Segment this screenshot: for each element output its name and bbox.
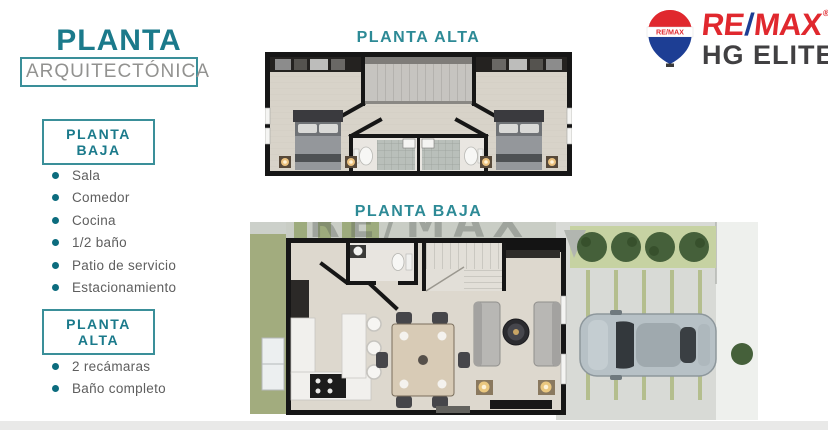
car [580, 310, 716, 380]
bullet-icon [52, 284, 59, 291]
slide: PLANTA ARQUITECTÓNICA PLANTA BAJA Sala C… [0, 0, 828, 430]
page-subtitle: ARQUITECTÓNICA [26, 61, 210, 82]
list-item: Cocina [52, 209, 176, 232]
hedge-row [564, 226, 716, 268]
page-title: PLANTA [18, 24, 220, 58]
list-item: Comedor [52, 187, 176, 210]
list-item: Estacionamiento [52, 277, 176, 300]
bullet-icon [52, 194, 59, 201]
stairs-ground [422, 243, 506, 291]
svg-text:RE/MAX: RE/MAX [656, 28, 684, 37]
plan-alta-title: PLANTA ALTA [265, 29, 572, 47]
floorplan-planta-baja: RE/MAX [250, 222, 758, 420]
floorplan-planta-alta [265, 52, 572, 176]
bullet-icon [52, 239, 59, 246]
closet-left [270, 57, 362, 72]
doormat [436, 406, 470, 413]
bullet-icon [52, 363, 59, 370]
page-subtitle-box: ARQUITECTÓNICA [20, 57, 198, 87]
bathroom-right [420, 138, 484, 171]
service-patio [262, 338, 284, 390]
list-item: Baño completo [52, 378, 166, 401]
bullet-icon [52, 172, 59, 179]
section-label-planta-baja: PLANTA BAJA [42, 119, 155, 165]
section-label-planta-alta: PLANTA ALTA [42, 309, 155, 355]
list-item: 2 recámaras [52, 355, 166, 378]
closet-right [475, 57, 567, 72]
plan-baja-title: PLANTA BAJA [265, 203, 572, 221]
bullet-icon [52, 385, 59, 392]
remax-balloon-icon: RE/MAX [644, 8, 696, 68]
list-item: Sala [52, 164, 176, 187]
planta-alta-feature-list: 2 recámaras Baño completo [52, 355, 166, 400]
remax-wordmark: RE/MAX® [700, 9, 828, 40]
remax-logo-text: RE/MAX® HG ELITE [702, 8, 828, 70]
list-item: Patio de servicio [52, 254, 176, 277]
half-bath [346, 243, 418, 285]
planta-baja-feature-list: Sala Comedor Cocina 1/2 baño Patio de se… [52, 164, 176, 299]
registered-mark: ® [822, 8, 828, 18]
bullet-icon [52, 262, 59, 269]
corner-bush [731, 343, 753, 365]
bottom-strip [0, 421, 828, 430]
remax-logo: RE/MAX RE/MAX® HG ELITE [644, 8, 822, 70]
stairs-upper [361, 57, 476, 106]
remax-office-name: HG ELITE [702, 42, 828, 69]
list-item: 1/2 baño [52, 232, 176, 255]
bullet-icon [52, 217, 59, 224]
